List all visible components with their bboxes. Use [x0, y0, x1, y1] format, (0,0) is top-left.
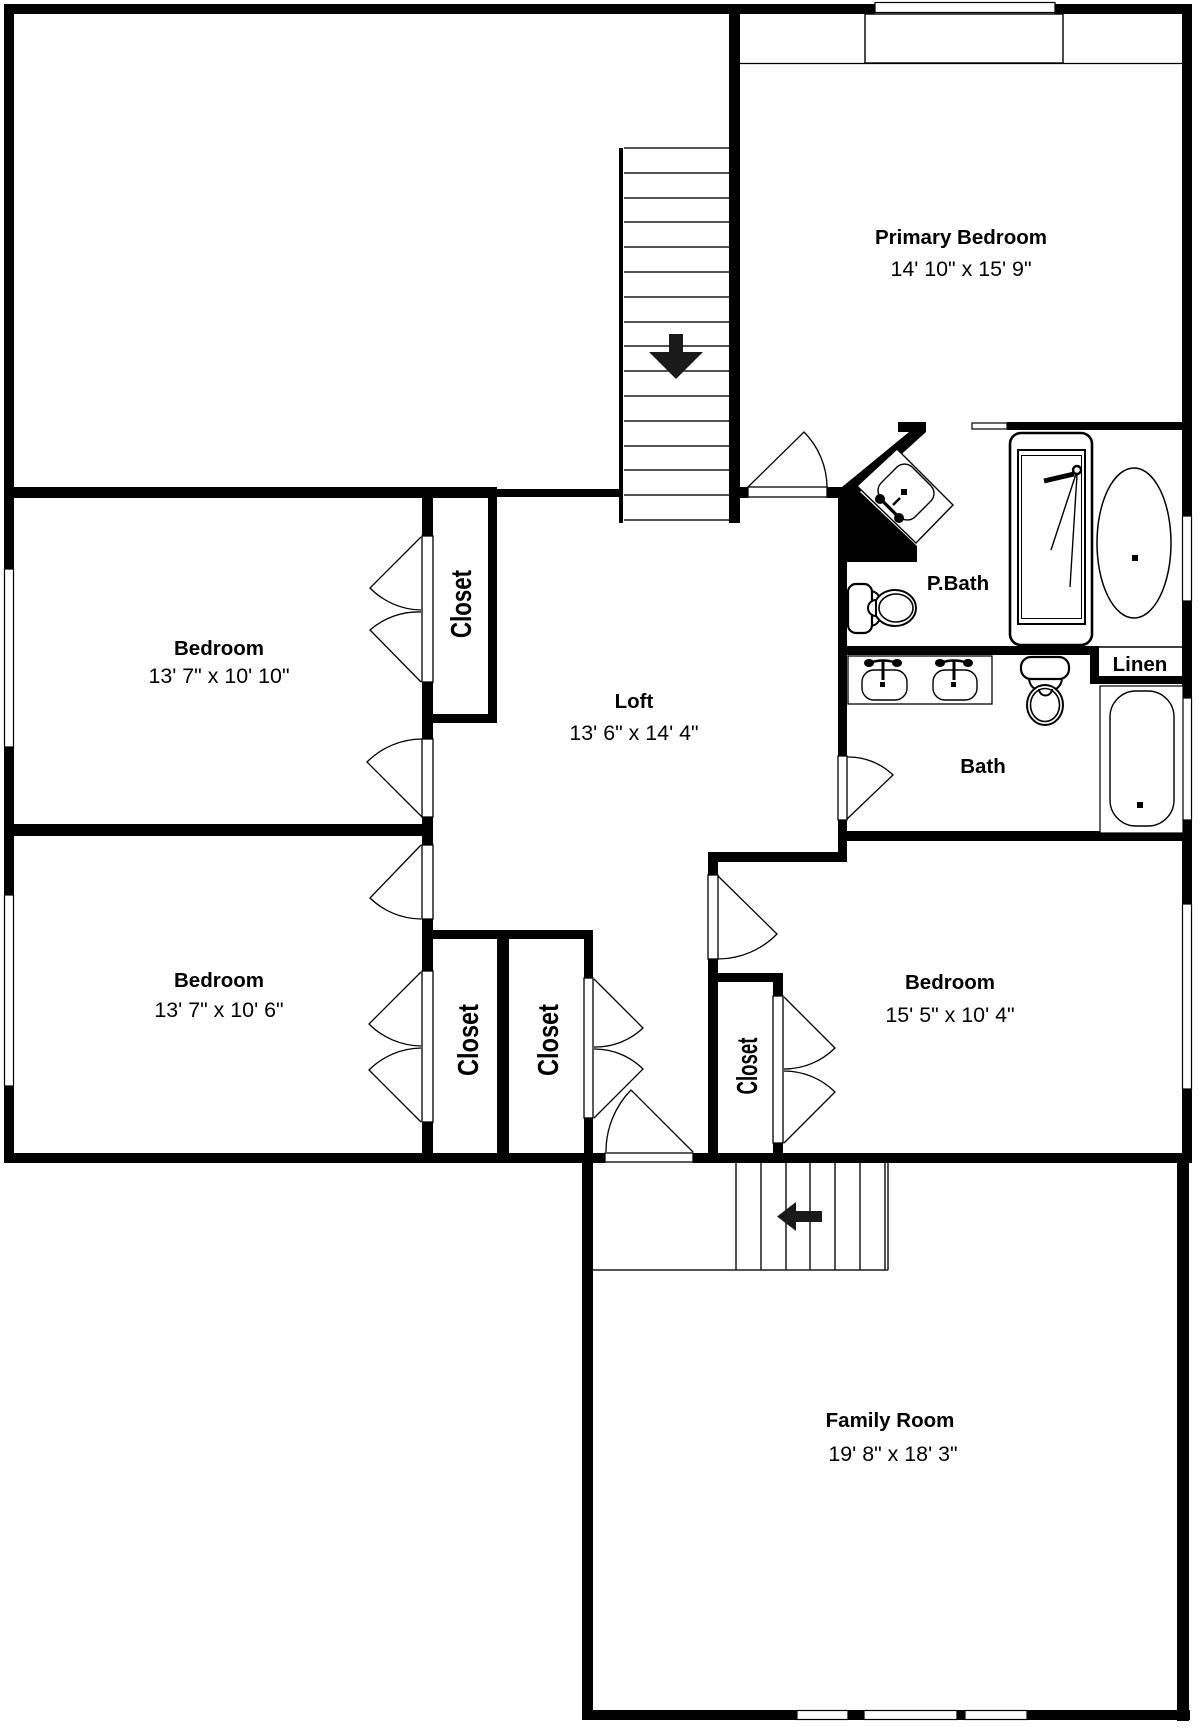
svg-text:19' 8" x 18' 3": 19' 8" x 18' 3" — [828, 1442, 957, 1466]
svg-text:Closet: Closet — [732, 1037, 764, 1094]
svg-text:15' 5" x 10' 4": 15' 5" x 10' 4" — [885, 1003, 1014, 1027]
svg-text:Closet: Closet — [453, 1004, 485, 1076]
svg-text:Closet: Closet — [446, 570, 478, 638]
svg-text:Primary Bedroom: Primary Bedroom — [875, 226, 1047, 249]
svg-text:13' 6" x 14' 4": 13' 6" x 14' 4" — [569, 721, 698, 745]
svg-text:Bedroom: Bedroom — [174, 969, 264, 992]
svg-text:Bedroom: Bedroom — [174, 637, 264, 660]
svg-text:Closet: Closet — [533, 1004, 565, 1076]
svg-text:14' 10" x 15' 9": 14' 10" x 15' 9" — [890, 257, 1031, 281]
svg-text:Family Room: Family Room — [826, 1409, 955, 1432]
svg-text:P.Bath: P.Bath — [927, 572, 989, 595]
svg-text:13' 7" x 10' 10": 13' 7" x 10' 10" — [148, 664, 289, 688]
svg-text:13' 7" x 10' 6": 13' 7" x 10' 6" — [154, 998, 283, 1022]
svg-text:Linen: Linen — [1113, 653, 1168, 676]
svg-text:Bedroom: Bedroom — [905, 971, 995, 994]
svg-text:Loft: Loft — [615, 690, 654, 713]
svg-text:Bath: Bath — [960, 755, 1006, 778]
